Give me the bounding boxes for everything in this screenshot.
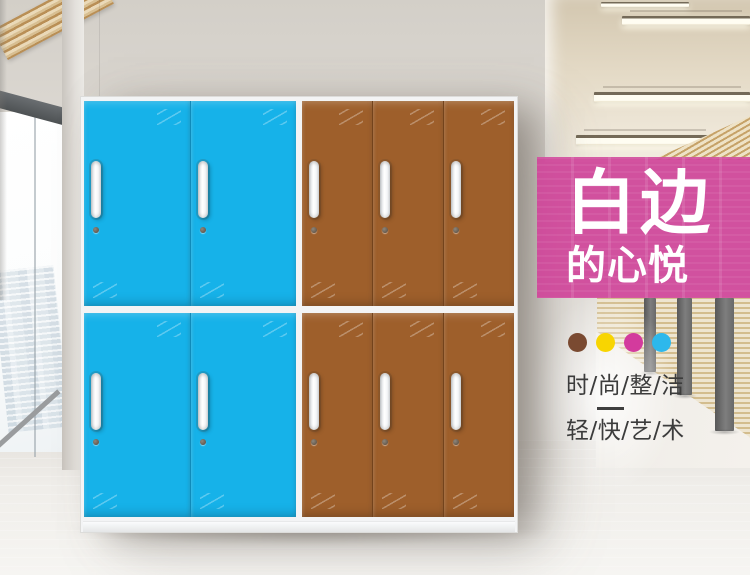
door-handle	[91, 161, 101, 218]
pillar	[715, 298, 734, 431]
keyhole	[200, 227, 206, 233]
color-dot-magenta	[624, 333, 643, 352]
door-handle	[380, 161, 390, 218]
keyhole	[382, 439, 388, 445]
keyhole	[453, 227, 459, 233]
banner-subtitle: 的心悦	[566, 245, 750, 287]
slogan-divider	[597, 407, 624, 410]
door-handle	[380, 373, 390, 430]
locker-door-brown	[444, 101, 514, 306]
locker-row	[84, 101, 296, 306]
slogan-line-1: 时/尚/整/洁	[566, 374, 706, 398]
door-handle	[198, 373, 208, 430]
slogan: 时/尚/整/洁 轻/快/艺/术	[566, 374, 706, 443]
ceiling-light	[594, 92, 750, 102]
color-dot-yellow	[596, 333, 615, 352]
wood-ceiling-slats	[0, 0, 114, 60]
scene: 白边 的心悦 时/尚/整/洁 轻/快/艺/术	[0, 0, 750, 575]
keyhole	[200, 439, 206, 445]
door-handle	[451, 373, 461, 430]
locker-door-blue	[191, 313, 297, 518]
locker-door-blue	[84, 313, 191, 518]
door-handle	[91, 373, 101, 430]
locker-door-blue	[84, 101, 191, 306]
promo-banner: 白边 的心悦	[537, 157, 750, 298]
locker-row	[302, 101, 514, 306]
keyhole	[311, 227, 317, 233]
locker-section-brown	[302, 101, 514, 517]
keyhole	[311, 439, 317, 445]
locker-door-brown	[373, 101, 444, 306]
color-palette-dots	[568, 333, 671, 352]
door-handle	[309, 161, 319, 218]
keyhole	[453, 439, 459, 445]
slogan-line-2: 轻/快/艺/术	[566, 419, 706, 443]
locker-door-brown	[373, 313, 444, 518]
color-dot-cyan	[652, 333, 671, 352]
color-dot-brown	[568, 333, 587, 352]
locker-base	[83, 521, 515, 532]
locker-door-brown	[302, 101, 373, 306]
wall-seam	[99, 0, 100, 96]
window-mullion	[34, 112, 36, 457]
locker-door-brown	[302, 313, 373, 518]
locker-row	[302, 313, 514, 518]
left-wall-edge	[0, 0, 7, 300]
locker-sections	[84, 101, 514, 517]
door-handle	[451, 161, 461, 218]
locker-door-brown	[444, 313, 514, 518]
banner-title: 白边	[566, 167, 750, 239]
keyhole	[93, 227, 99, 233]
door-handle	[198, 161, 208, 218]
locker-unit	[80, 96, 518, 533]
keyhole	[382, 227, 388, 233]
keyhole	[93, 439, 99, 445]
locker-section-blue	[84, 101, 296, 517]
door-handle	[309, 373, 319, 430]
ceiling-light	[601, 2, 689, 7]
locker-row	[84, 313, 296, 518]
locker-door-blue	[191, 101, 297, 306]
ceiling-light	[622, 16, 750, 25]
